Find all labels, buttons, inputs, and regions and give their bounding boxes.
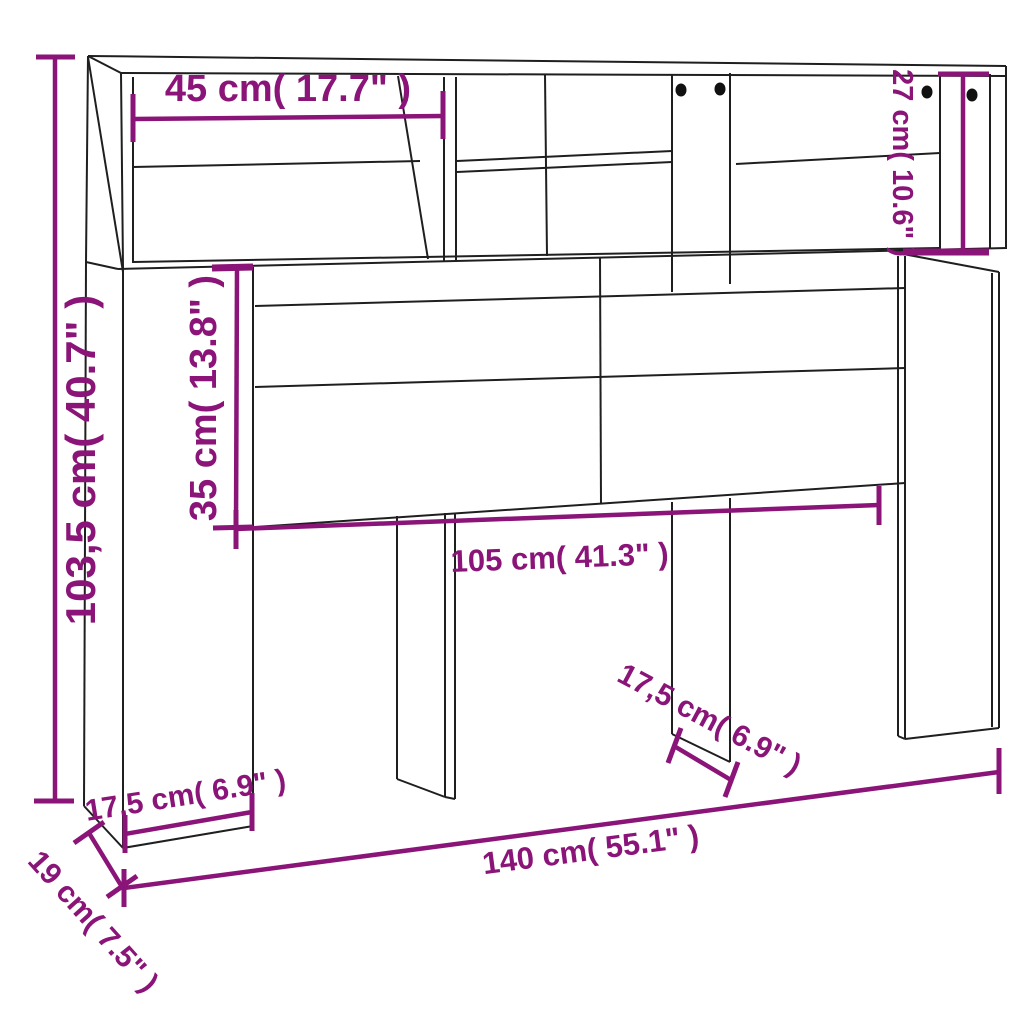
shelf-width-label: 45 cm( 17.7" )	[165, 68, 411, 110]
dimension-left-column-width: 17,5 cm( 6.9" )	[83, 763, 288, 853]
panel-height-label: 35 cm( 13.8" )	[183, 275, 225, 521]
inner-width-label: 105 cm( 41.3" )	[450, 536, 669, 579]
screw-hole-icon	[676, 84, 687, 97]
overall-height-label: 103,5 cm( 40.7" )	[57, 295, 104, 625]
overall-depth-label: 19 cm( 7.5" )	[21, 845, 164, 999]
dimension-inner-width: 105 cm( 41.3" )	[236, 486, 879, 579]
dimension-panel-height: 35 cm( 13.8" )	[183, 267, 253, 528]
leg-width-label: 17,5 cm( 6.9" )	[612, 657, 806, 781]
dimension-leg-width: 17,5 cm( 6.9" )	[612, 657, 806, 797]
dimension-diagram-page: 103,5 cm( 40.7" ) 45 cm( 17.7" ) 27 cm( …	[0, 0, 1024, 1024]
top-depth-label: 27 cm( 10.6" )	[886, 69, 918, 257]
cabinet-screw-holes	[676, 83, 978, 102]
left-column-width-label: 17,5 cm( 6.9" )	[83, 763, 288, 827]
dimension-overall-depth: 19 cm( 7.5" )	[21, 822, 164, 999]
screw-hole-icon	[922, 86, 933, 99]
dimension-overall-height: 103,5 cm( 40.7" )	[34, 57, 104, 801]
dimension-shelf-width: 45 cm( 17.7" )	[133, 68, 443, 142]
headboard-dimension-diagram: 103,5 cm( 40.7" ) 45 cm( 17.7" ) 27 cm( …	[0, 0, 1024, 1024]
screw-hole-icon	[715, 83, 726, 96]
screw-hole-icon	[967, 89, 978, 102]
